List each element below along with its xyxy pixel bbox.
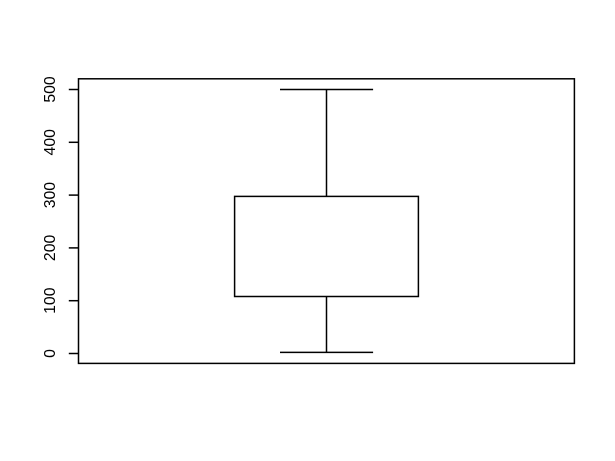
svg-text:500: 500 [42, 76, 59, 103]
svg-text:0: 0 [42, 349, 59, 358]
svg-text:200: 200 [42, 235, 59, 262]
svg-text:100: 100 [42, 287, 59, 314]
svg-text:400: 400 [42, 129, 59, 156]
svg-text:300: 300 [42, 182, 59, 209]
